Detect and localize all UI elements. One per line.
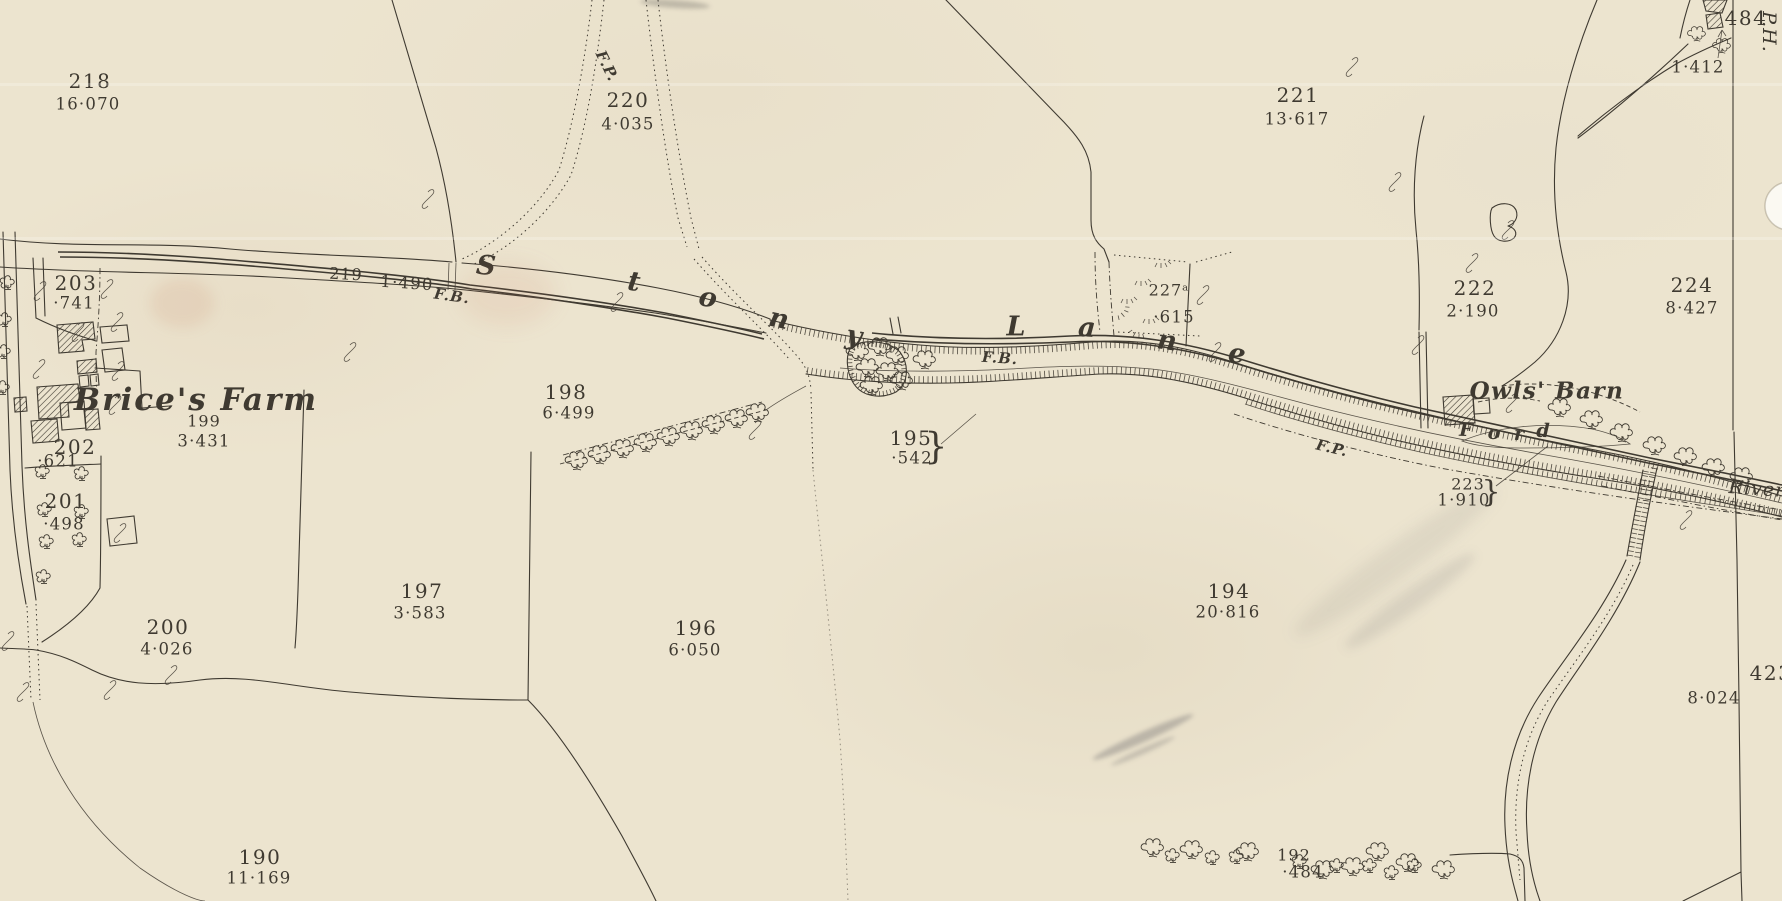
tree-icon [856,359,878,377]
boundary-tie-icon [1346,58,1358,77]
otree-icon [1205,851,1219,865]
tree-icon [1580,411,1602,429]
boundary-tie-icon [1466,254,1478,273]
otree-icon [74,505,88,519]
otree-icon [1292,855,1306,869]
boundary-tie-icon [1506,394,1518,413]
tree-icon [725,410,747,428]
tree-icon [1141,839,1163,857]
boundary-tie-icon [1412,336,1424,355]
tree-icon [1548,399,1570,417]
boundary-tie-icon [104,681,116,700]
footpaths [462,0,1782,901]
hachure-ticks [1634,468,1656,558]
boundary-tie-icon [2,632,14,651]
boundary-tie-icon [114,524,126,543]
otree-icon [1165,849,1179,863]
boundary-tie-icon [1680,511,1692,530]
tree-icon [657,428,679,446]
boundary-tie-icon [17,683,29,702]
otree-icon [37,503,51,517]
trees [0,27,1752,880]
rough-grass [1115,261,1171,341]
boundary-tie-icon [344,343,356,362]
tree-icon [1432,861,1454,879]
boundary-tie-icon [749,421,761,440]
otree-icon [74,467,88,481]
owls-barn-building [1443,395,1475,425]
boundary-tie-icon [422,190,434,209]
tree-icon [1341,858,1363,876]
tree-icon [565,452,587,470]
boundary-tie-icon [1197,286,1209,305]
hachure-ticks [807,367,1782,517]
tree-icon [1610,424,1632,442]
map-linework [0,0,1782,901]
tree-icon [634,434,656,452]
roads [0,239,1782,901]
tree-icon [913,351,935,369]
tree-icon [876,363,898,381]
tree-icon [611,440,633,458]
hachure-ticks [769,320,1780,502]
bank-hachures [769,320,1782,557]
otree-icon [1384,866,1398,880]
boundary-tie-icon [33,360,45,379]
brices-farm-building [57,322,95,353]
benchmark-arrow [1718,30,1726,58]
otree-icon [72,533,86,547]
boundary-tie-icon [111,313,123,332]
tree-icon [1643,437,1665,455]
tree-icon [1180,841,1202,859]
map-canvas: 21816·0702204·035F.P.22113·617484P.H.1·4… [0,0,1782,901]
tree-icon [1713,39,1731,54]
boundary-tie-icon [101,280,113,299]
otree-icon [36,570,50,584]
otree-icon [0,276,14,290]
tree-icon [746,404,768,422]
tree-icon [1688,27,1706,42]
tree-icon [702,416,724,434]
boundary-tie-icon [165,666,177,685]
tree-icon [1366,843,1388,861]
boundary-tie-icon [1389,173,1401,192]
otree-icon [0,345,10,359]
tree-icon [680,422,702,440]
boundary-tie-icon [109,396,121,415]
punch-hole [1765,182,1782,230]
tree-icon [588,446,610,464]
otree-icon [39,535,53,549]
field-boundaries [0,0,1742,901]
